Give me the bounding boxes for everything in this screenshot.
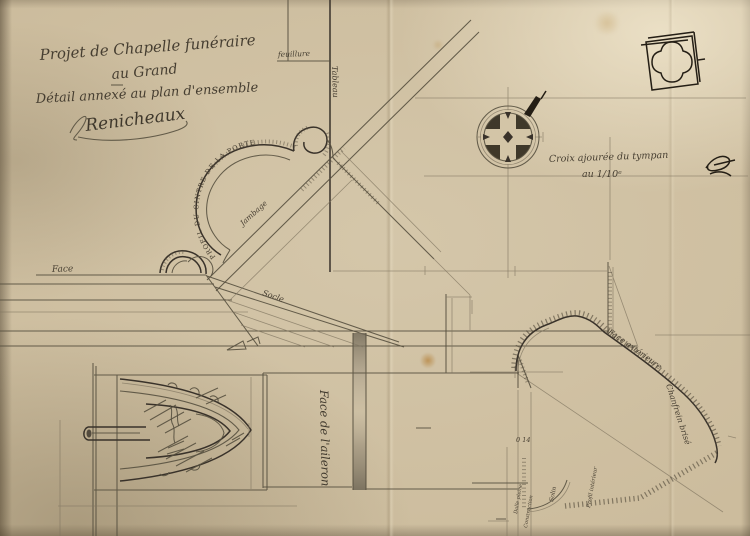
rosette-pointer-blade (524, 96, 541, 117)
title-block: Projet de Chapelle funéraire au Grand Dé… (34, 31, 258, 140)
chamfer-label: Chanfrein brisé (664, 383, 692, 446)
dim-label: 0 14 (516, 436, 530, 444)
aileron-face-label: Face de l'aileron (317, 389, 333, 487)
title-line3: Détail annexé au plan d'ensemble (34, 80, 258, 107)
face-label: Face (51, 264, 74, 275)
stele-elevation (58, 337, 297, 536)
solin-label: Solin (548, 486, 558, 503)
tableau-label: Tableau (330, 66, 340, 98)
hatched-band (353, 333, 366, 490)
pencil-drawing: Projet de Chapelle funéraire au Grand Dé… (0, 0, 750, 536)
socle-label: Socle (261, 288, 285, 304)
feuillure-label: feuillure (277, 49, 311, 59)
outer-face-label: Face extérieure (605, 327, 663, 372)
tympanum-caption-line2: au 1/10ᵉ (582, 169, 622, 180)
arc-label: PROFIL DU CINTRE DE LA PORTE (192, 138, 256, 261)
signature: Renicheaux (83, 104, 187, 136)
stem-knob (87, 430, 92, 438)
jambage-label: Jambage (237, 198, 270, 229)
tympanum-caption-line1: Croix ajourée du tympan (549, 150, 669, 165)
quatrefoil-sketch (641, 32, 705, 90)
title-line1: Projet de Chapelle funéraire (38, 31, 256, 64)
title-line2: au Grand (111, 61, 178, 83)
tympanum-rosette: Croix ajourée du tympan au 1/10ᵉ (415, 87, 748, 278)
ink-scribble (706, 156, 735, 176)
drawing-sheet: Projet de Chapelle funéraire au Grand Dé… (0, 0, 750, 536)
aileron-face-plan: Face de l'aileron (263, 294, 519, 490)
profil-interieur-label: Profil intérieur (585, 466, 599, 509)
quatrefoil-flower (652, 42, 692, 82)
